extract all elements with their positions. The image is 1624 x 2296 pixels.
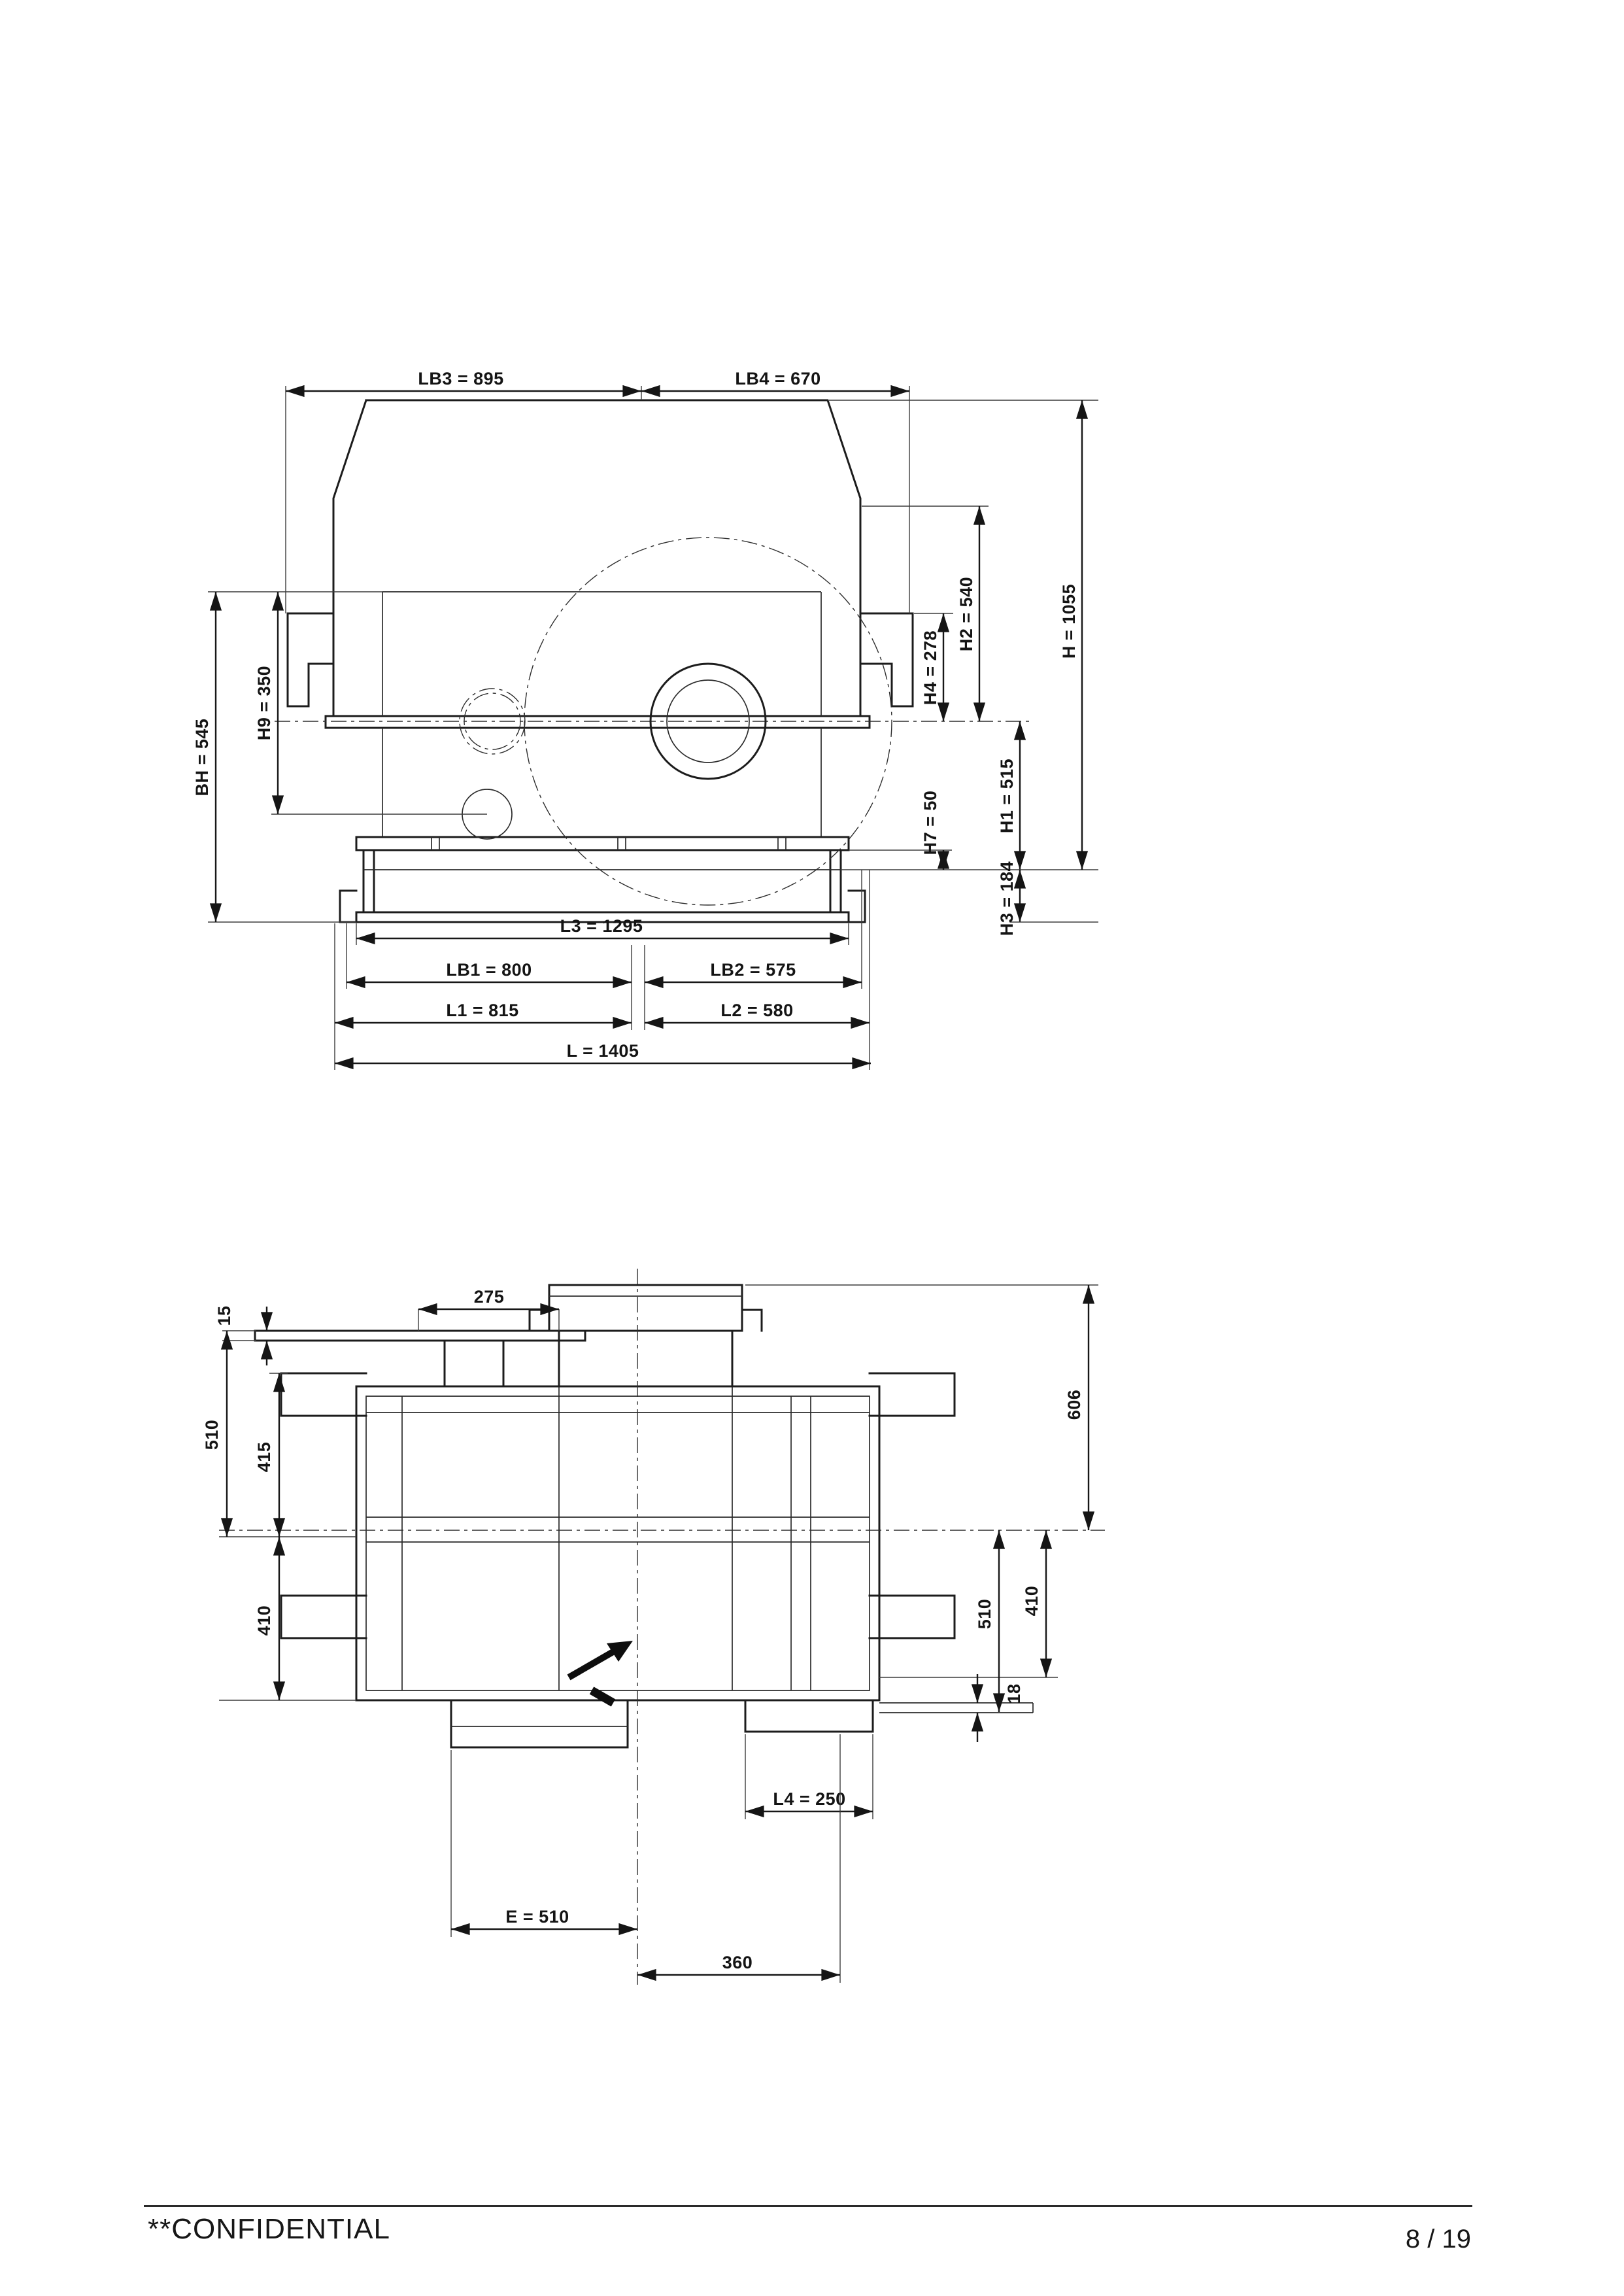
shaft-flange-cap — [549, 1285, 742, 1386]
base-rails — [356, 850, 849, 922]
dim-360: 360 — [637, 1734, 840, 1983]
dim-510-left-label: 510 — [202, 1420, 222, 1450]
dim-lb4: LB4 = 670 — [641, 369, 909, 613]
confidential-watermark: **CONFIDENTIAL — [148, 2213, 390, 2246]
dim-h1-label: H1 = 515 — [997, 759, 1017, 833]
bottom-left-protrusion — [451, 1700, 628, 1747]
dim-h7: H7 = 50 — [841, 791, 1098, 870]
dim-275-label: 275 — [474, 1287, 505, 1307]
front-view — [275, 400, 1033, 922]
front-view-dimensions: LB3 = 895 LB4 = 670 H4 = 278 H2 = 540 H1… — [192, 369, 1098, 1070]
dim-18-label: 18 — [1004, 1683, 1024, 1704]
dim-510-right: 510 — [975, 1530, 999, 1712]
drawing-canvas: LB3 = 895 LB4 = 670 H4 = 278 H2 = 540 H1… — [0, 0, 1624, 2296]
dim-lb2-label: LB2 = 575 — [710, 960, 796, 980]
tab-left-top — [281, 1373, 366, 1416]
right-rail-clamp — [860, 613, 913, 706]
dim-h4-label: H4 = 278 — [921, 630, 940, 705]
tab-right-top — [870, 1373, 955, 1416]
dim-510-right-label: 510 — [975, 1599, 994, 1630]
dim-lb1-label: LB1 = 800 — [446, 960, 532, 980]
left-foot — [340, 891, 356, 922]
dim-410-right-label: 410 — [1022, 1586, 1041, 1617]
top-plate-stem — [445, 1341, 503, 1386]
left-rail-clamp — [288, 613, 333, 706]
dim-h2-label: H2 = 540 — [956, 577, 976, 651]
dim-l2-label: L2 = 580 — [720, 1001, 793, 1020]
dim-bh-label: BH = 545 — [192, 719, 212, 797]
dim-606-label: 606 — [1064, 1390, 1084, 1420]
base-step — [356, 837, 849, 850]
dim-18: 18 — [977, 1674, 1024, 1742]
cap-step-left — [530, 1310, 549, 1331]
right-foot — [849, 891, 865, 922]
dim-l-label: L = 1405 — [567, 1041, 639, 1061]
dim-h4: H4 = 278 — [914, 613, 953, 721]
dim-lb3-label: LB3 = 895 — [418, 369, 503, 388]
rotation-arrow — [569, 1641, 633, 1703]
joint-flange — [326, 716, 870, 728]
dim-l1-label: L1 = 815 — [446, 1001, 518, 1020]
dim-410-right: 410 — [879, 1530, 1058, 1677]
dim-360-label: 360 — [722, 1953, 753, 1972]
dim-h9-label: H9 = 350 — [254, 666, 274, 740]
plan-view-dimensions: 275 15 510 415 410 606 — [202, 1285, 1098, 1983]
dim-275: 275 — [418, 1287, 559, 1331]
dim-lb4-label: LB4 = 670 — [735, 369, 820, 388]
dim-h1: H1 = 515 — [997, 721, 1020, 870]
dim-15: 15 — [214, 1305, 267, 1365]
engineering-drawing-page: LB3 = 895 LB4 = 670 H4 = 278 H2 = 540 H1… — [0, 0, 1624, 2296]
dim-e-label: E = 510 — [505, 1907, 569, 1927]
dim-h3-label: H3 = 184 — [997, 861, 1017, 936]
footer-divider — [144, 2205, 1472, 2207]
dim-lb3: LB3 = 895 — [286, 369, 641, 613]
dim-410-left-label: 410 — [254, 1605, 274, 1636]
plan-view — [219, 1269, 1105, 1985]
dim-606: 606 — [745, 1285, 1098, 1530]
hood-outline — [333, 400, 860, 716]
dim-h-label: H = 1055 — [1059, 584, 1079, 659]
dim-l4: L4 = 250 — [745, 1734, 873, 1819]
dim-410-left: 410 — [219, 1537, 356, 1700]
dim-h3: H3 = 184 — [997, 861, 1098, 936]
inner-case — [382, 592, 821, 837]
dim-e: E = 510 — [451, 1750, 637, 1937]
dim-415: 415 — [254, 1373, 288, 1537]
dim-h7-label: H7 = 50 — [921, 791, 940, 855]
dim-15-label: 15 — [214, 1305, 234, 1326]
dim-h9: H9 = 350 — [254, 592, 487, 814]
cap-step-right — [742, 1310, 762, 1331]
dim-l: L = 1405 — [335, 1041, 871, 1063]
bottom-right-plate — [745, 1700, 873, 1732]
dim-415-label: 415 — [254, 1442, 274, 1473]
top-plate — [255, 1331, 585, 1341]
tab-right-bottom — [870, 1596, 955, 1638]
dim-l3-label: L3 = 1295 — [560, 916, 643, 936]
dim-l3: L3 = 1295 — [356, 916, 849, 945]
dim-l4-label: L4 = 250 — [773, 1789, 845, 1809]
tab-left-bottom — [281, 1596, 366, 1638]
page-number: 8 / 19 — [1340, 2225, 1471, 2254]
